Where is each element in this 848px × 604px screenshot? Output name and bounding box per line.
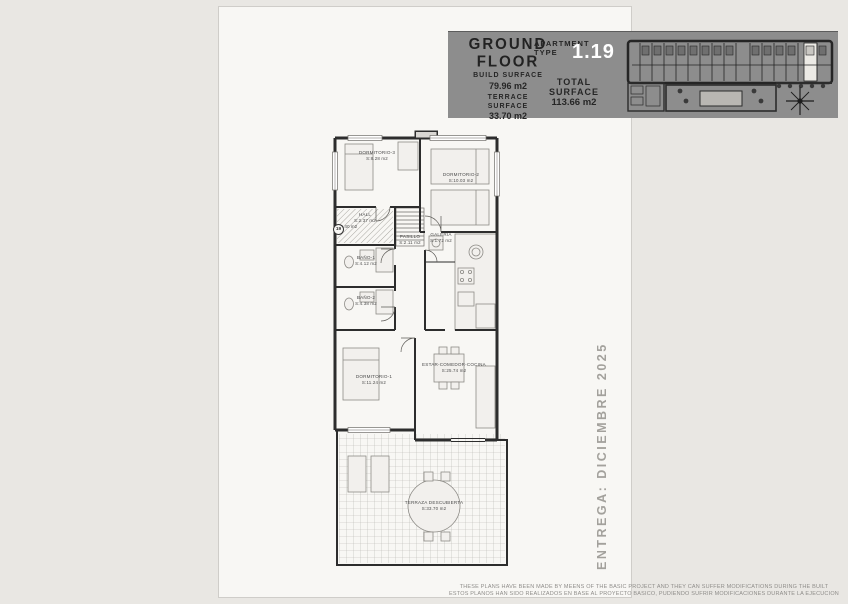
floor-plan-drawing: DORMITORIO-3 S:8.28 m2 DORMITORIO-2 S:10… [318,116,533,576]
unit-number-marker: 19 [333,224,344,235]
total-surface-label: TOTAL SURFACE [536,77,612,97]
room-label-terraza-descubierta: TERRAZA DESCUBIERTA S:33.70 m2 [392,500,476,511]
site-plan-buildings [628,41,832,83]
room-label-hall: HALL S:2.37 m2 [345,212,385,223]
footer-disclaimer: THESE PLANS HAVE BEEN MADE BY MEENS OF T… [441,584,847,598]
header-band: GROUND FLOOR BUILD SURFACE 79.96 m2 TERR… [448,31,838,118]
room-label-estar-comedor-cocina: ESTAR-COMEDOR-COCINA S:25.74 m2 [412,362,496,373]
footer-line-es: ESTOS PLANOS HAN SIDO REALIZADOS EN BASE… [441,591,847,598]
apartment-type-value: 1.19 [572,41,615,64]
room-label-dormitorio-2: DORMITORIO-2 S:10.03 m2 [430,172,492,183]
total-surface-value: 113.66 m2 [536,97,612,109]
floor-plan-page: GROUND FLOOR BUILD SURFACE 79.96 m2 TERR… [0,0,848,604]
site-plan-map [624,35,836,117]
room-label-bano-1: BAÑO-1 S:4.12 m2 [346,255,386,266]
sofa [476,366,495,428]
total-surface-block: TOTAL SURFACE 113.66 m2 [536,77,612,109]
room-label-bano-2: BAÑO-2 S:4.38 m2 [346,295,386,306]
room-label-dormitorio-3: DORMITORIO-3 S:8.28 m2 [346,150,408,161]
footer-line-en: THESE PLANS HAVE BEEN MADE BY MEENS OF T… [441,584,847,591]
room-label-galeria: GALERIA S:1.72 m2 [421,232,461,243]
room-label-dormitorio-1: DORMITORIO-1 S:11.24 m2 [334,374,414,385]
beds-dormitorio-2 [431,149,489,225]
compass-rose-icon [786,87,814,115]
delivery-date-text: ENTREGA: DICIEMBRE 2025 [589,322,615,590]
site-plan-pool-deck [628,83,832,111]
kitchen-counter [455,234,497,330]
